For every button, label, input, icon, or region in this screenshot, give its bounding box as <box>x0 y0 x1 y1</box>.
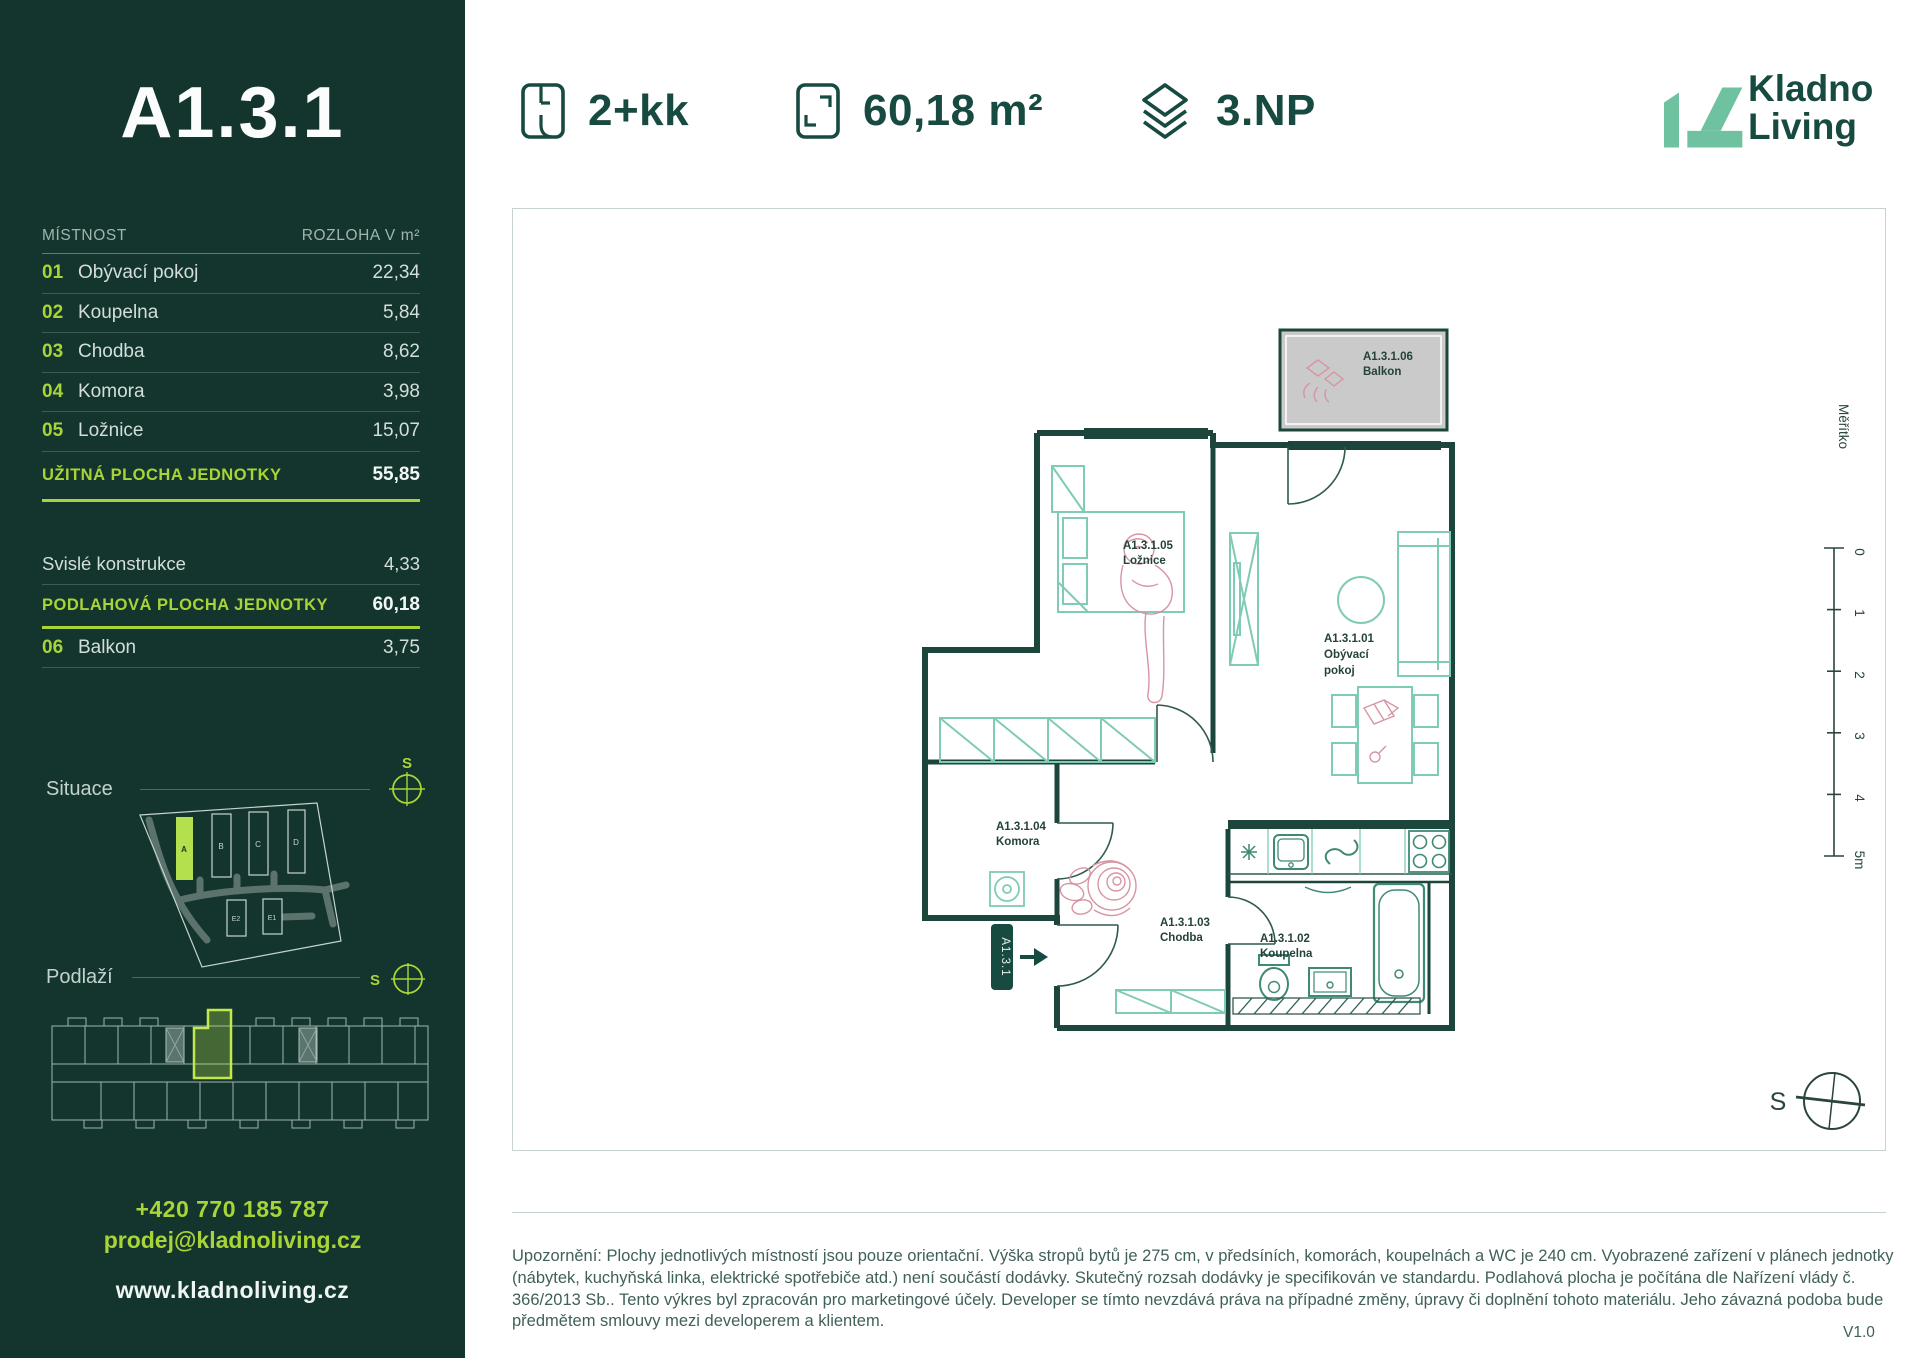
bathroom-id: A1.3.1.02 <box>1260 933 1310 945</box>
layout-value: 2+kk <box>588 86 689 136</box>
room-table: MÍSTNOST ROZLOHA V m² 01 Obývací pokoj 2… <box>42 205 420 668</box>
balcony-door <box>1288 447 1345 504</box>
floor-area-label: PODLAHOVÁ PLOCHA JEDNOTKY <box>42 596 328 615</box>
balcony-name: Balkon <box>1363 366 1401 378</box>
room-label: Balkon <box>78 637 136 659</box>
col-room-header: MÍSTNOST <box>42 227 127 245</box>
building-letter: E1 <box>268 915 277 922</box>
storage-furniture <box>990 872 1024 906</box>
contact-website: www.kladnoliving.cz <box>0 1277 465 1304</box>
floor-hatch <box>1233 998 1420 1014</box>
scale-tick: 5m <box>1852 851 1867 870</box>
bedroom-window <box>1084 428 1208 439</box>
floor-plan: A1.3.1.06 Balkon <box>512 208 1886 1151</box>
bedroom-name: Ložnice <box>1123 555 1166 567</box>
storage-name: Komora <box>996 836 1040 848</box>
room-area: 5,84 <box>383 302 420 324</box>
room-number: 03 <box>42 341 78 363</box>
layout-badge: 2+kk <box>520 82 689 140</box>
hall-id: A1.3.1.03 <box>1160 917 1210 929</box>
living-id: A1.3.1.01 <box>1324 633 1374 645</box>
room-number: 04 <box>42 381 78 403</box>
building-outline <box>52 1018 428 1128</box>
entry-door <box>1057 925 1118 986</box>
room-number: 06 <box>42 637 78 659</box>
site-plan: A B C D E2 E1 <box>120 798 370 978</box>
room-label: Ložnice <box>78 420 144 442</box>
kitchen <box>1228 829 1452 874</box>
podlazi-compass-icon: S <box>366 960 430 998</box>
vertical-structures-value: 4,33 <box>384 553 420 575</box>
scale-label: Měřítko <box>1836 404 1851 449</box>
unit-title: A1.3.1 <box>0 72 465 154</box>
bedroom-id: A1.3.1.05 <box>1123 540 1173 552</box>
dishwasher-symbol <box>1241 844 1257 860</box>
floor-area-row: PODLAHOVÁ PLOCHA JEDNOTKY 60,18 <box>42 585 420 629</box>
balcony-id: A1.3.1.06 <box>1363 351 1413 363</box>
sofa <box>1398 532 1450 676</box>
contact-email: prodej@kladnoliving.cz <box>0 1227 465 1254</box>
table-row: 03 Chodba 8,62 <box>42 333 420 373</box>
floorplan-sheet: A1.3.1 MÍSTNOST ROZLOHA V m² 01 Obývací … <box>0 0 1920 1358</box>
brand-name: Kladno Living <box>1748 70 1873 146</box>
area-icon <box>795 82 841 140</box>
scale-tick: 0 <box>1852 548 1867 556</box>
disclaimer-text: Upozornění: Plochy jednotlivých místnost… <box>512 1246 1902 1333</box>
vertical-structures-label: Svislé konstrukce <box>42 553 186 575</box>
table-header: MÍSTNOST ROZLOHA V m² <box>42 205 420 254</box>
contact-phone: +420 770 185 787 <box>0 1196 465 1223</box>
scale-tick: 3 <box>1852 732 1867 740</box>
scale-tick: 1 <box>1852 609 1867 617</box>
plan-compass-icon: S <box>1770 1072 1865 1129</box>
brand-line2: Living <box>1748 108 1873 146</box>
living-name-1: Obývací <box>1324 649 1370 661</box>
room-area: 15,07 <box>372 420 420 442</box>
hall-name: Chodba <box>1160 932 1203 944</box>
podlazi-label: Podlaží <box>46 966 113 989</box>
rug <box>1338 577 1384 623</box>
doors <box>1057 447 1345 986</box>
table-row: 01 Obývací pokoj 22,34 <box>42 254 420 294</box>
footer-divider <box>512 1212 1886 1213</box>
usable-area-label: UŽITNÁ PLOCHA JEDNOTKY <box>42 466 282 485</box>
room-area: 3,75 <box>383 637 420 659</box>
bedroom-door <box>1157 705 1213 762</box>
living-name-2: pokoj <box>1324 665 1355 677</box>
room-number: 01 <box>42 262 78 284</box>
stair-cores <box>166 1028 317 1062</box>
area-value: 60,18 m² <box>863 86 1043 136</box>
balcony-row: 06 Balkon 3,75 <box>42 629 420 669</box>
balcony-window <box>1288 441 1441 450</box>
room-label: Obývací pokoj <box>78 262 198 284</box>
area-badge: 60,18 m² <box>795 82 1043 140</box>
floor-value: 3.NP <box>1216 86 1316 136</box>
table-row: 05 Ložnice 15,07 <box>42 412 420 452</box>
compass-letter: S <box>402 755 412 772</box>
table-row: 02 Koupelna 5,84 <box>42 294 420 334</box>
scale-tick: 2 <box>1852 671 1867 679</box>
room-number: 02 <box>42 302 78 324</box>
highlighted-unit <box>194 1010 231 1078</box>
situace-label: Situace <box>46 778 113 801</box>
brand-line1: Kladno <box>1748 70 1873 108</box>
room-label: Chodba <box>78 341 145 363</box>
kladno-living-logo-icon <box>1664 76 1744 154</box>
sidebar: A1.3.1 MÍSTNOST ROZLOHA V m² 01 Obývací … <box>0 0 465 1358</box>
plan-compass-letter: S <box>1770 1088 1787 1116</box>
faucet-symbol <box>1326 840 1358 864</box>
version-label: V1.0 <box>1843 1324 1875 1342</box>
table-sketches <box>1364 700 1398 762</box>
building-letter: E2 <box>232 916 241 923</box>
storage-id: A1.3.1.04 <box>996 821 1046 833</box>
building-letter: D <box>293 838 299 847</box>
room-area: 22,34 <box>372 262 420 284</box>
situace-divider <box>140 789 370 790</box>
bathtub <box>1374 884 1424 1002</box>
room-labels: A1.3.1.05 Ložnice A1.3.1.01 Obývací poko… <box>996 540 1374 960</box>
room-label: Koupelna <box>78 302 158 324</box>
table-row: 04 Komora 3,98 <box>42 373 420 413</box>
situace-compass-icon: S <box>384 752 430 810</box>
vertical-structures-row: Svislé konstrukce 4,33 <box>42 544 420 585</box>
room-area: 8,62 <box>383 341 420 363</box>
usable-area-row: UŽITNÁ PLOCHA JEDNOTKY 55,85 <box>42 452 420 502</box>
compass-letter: S <box>370 972 380 989</box>
floor-strip-plan <box>38 1002 438 1142</box>
floor-badge: 3.NP <box>1136 82 1316 140</box>
shoe-cabinet <box>1116 990 1225 1013</box>
col-area-header: ROZLOHA V m² <box>302 227 420 245</box>
entry-tag-label: A1.3.1 <box>999 937 1011 976</box>
building-letter: B <box>218 842 223 851</box>
scale-tick: 4 <box>1852 794 1867 802</box>
scale-bar: Měřítko 0 1 2 3 4 5m <box>1824 404 1867 869</box>
floor-icon <box>1136 82 1194 140</box>
room-number: 05 <box>42 420 78 442</box>
usable-area-value: 55,85 <box>372 464 420 486</box>
bathroom-name: Koupelna <box>1260 948 1313 960</box>
layout-icon <box>520 82 566 140</box>
building-letter: A <box>181 845 187 854</box>
rose-sketch <box>1058 861 1136 916</box>
podlazi-divider <box>132 977 360 978</box>
room-label: Komora <box>78 381 145 403</box>
floor-area-value: 60,18 <box>372 594 420 616</box>
building-letter: C <box>255 840 261 849</box>
room-area: 3,98 <box>383 381 420 403</box>
entry-marker: A1.3.1 <box>991 924 1048 990</box>
balcony: A1.3.1.06 Balkon <box>1280 330 1447 430</box>
